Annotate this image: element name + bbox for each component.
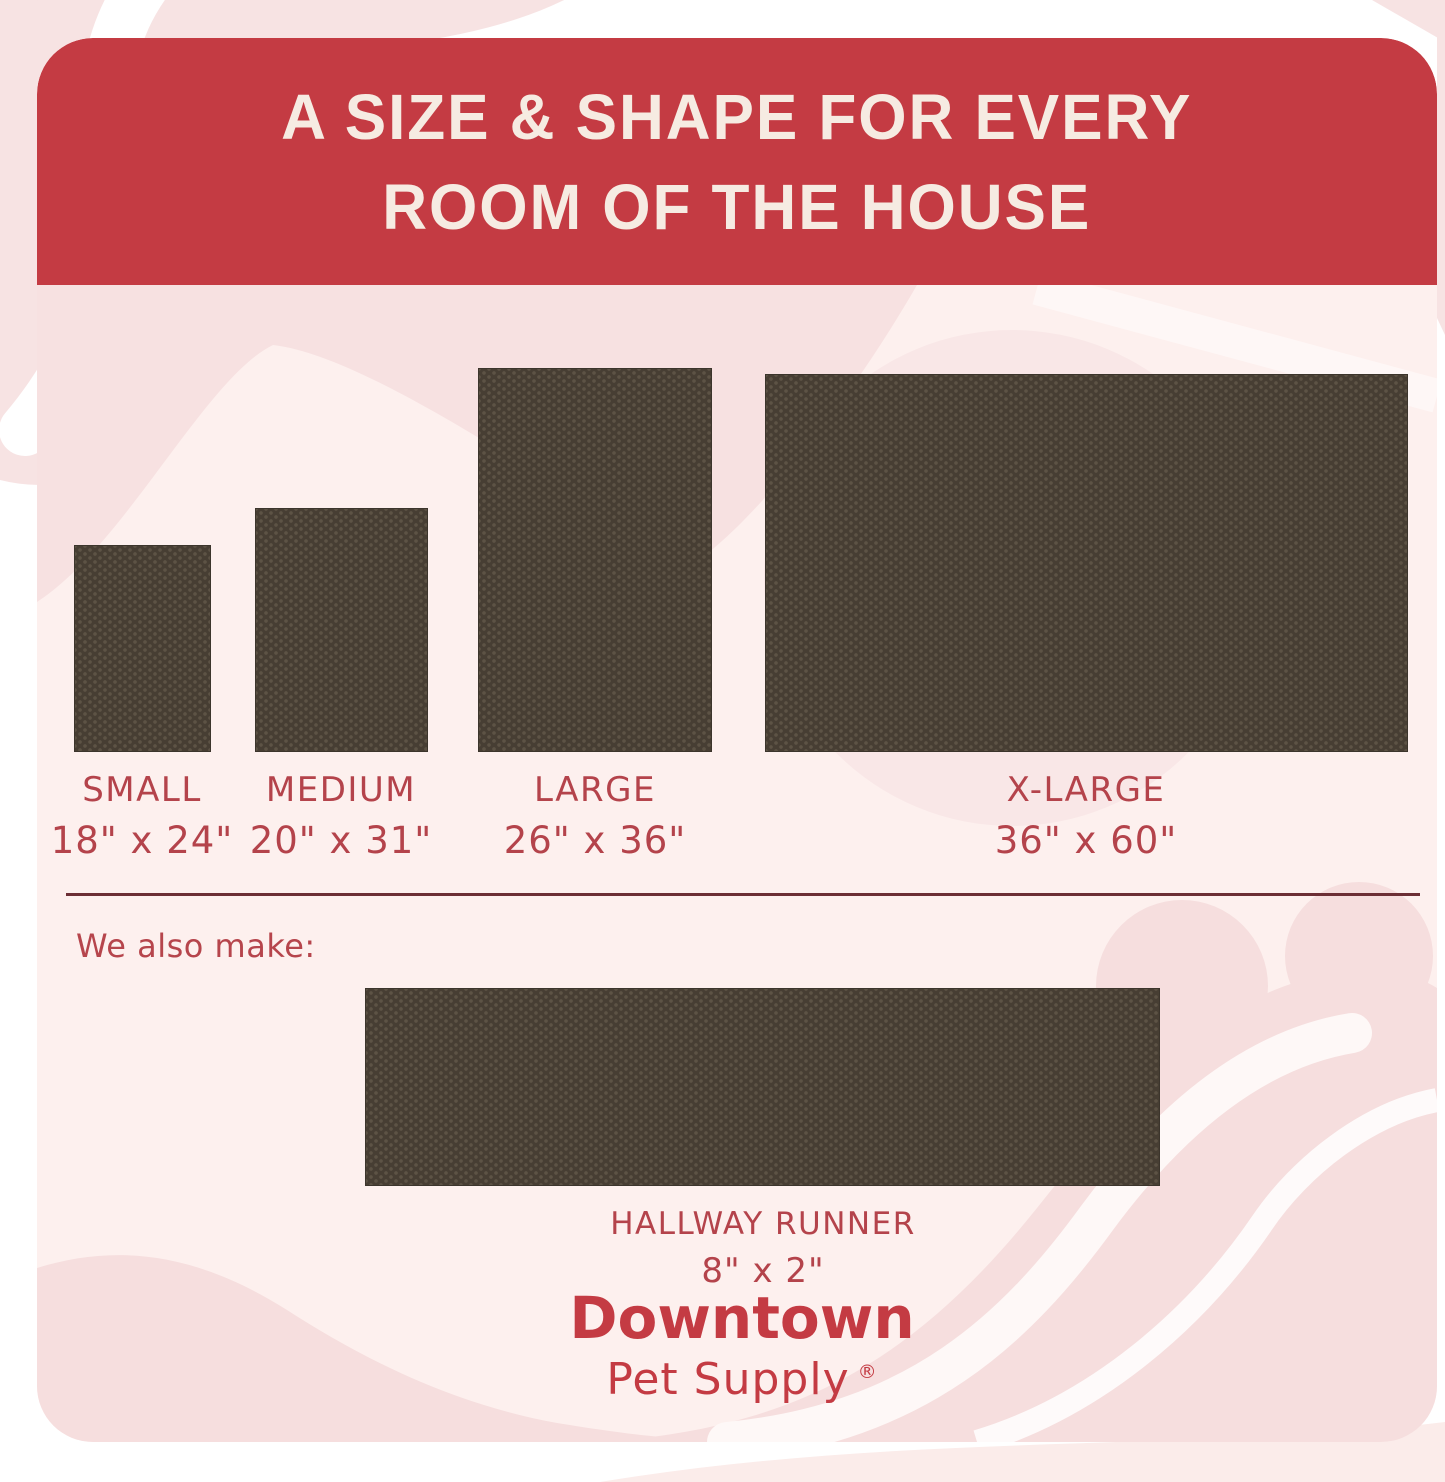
registered-trademark-symbol: ® [858, 1361, 878, 1383]
title-line-2: ROOM OF THE HOUSE [281, 162, 1192, 252]
size-dimensions: 36" x 60" [995, 819, 1178, 862]
size-name: SMALL [51, 770, 234, 810]
size-dimensions: 26" x 36" [504, 819, 687, 862]
size-dimensions: 18" x 24" [51, 819, 234, 862]
size-dimensions: 20" x 31" [250, 819, 433, 862]
mat-swatch-xlarge [765, 374, 1408, 752]
brand-subtitle-text: Pet Supply [606, 1354, 849, 1405]
header-banner: A SIZE & SHAPE FOR EVERY ROOM OF THE HOU… [37, 38, 1437, 285]
size-label-xlarge: X-LARGE 36" x 60" [995, 770, 1178, 862]
infographic-canvas: A SIZE & SHAPE FOR EVERY ROOM OF THE HOU… [0, 0, 1445, 1482]
title-line-1: A SIZE & SHAPE FOR EVERY [281, 72, 1192, 162]
brand-name: Downtown [569, 1284, 914, 1352]
size-name: HALLWAY RUNNER [610, 1206, 916, 1242]
page-title: A SIZE & SHAPE FOR EVERY ROOM OF THE HOU… [281, 72, 1192, 252]
brand-subtitle: Pet Supply® [569, 1354, 914, 1405]
size-label-large: LARGE 26" x 36" [504, 770, 687, 862]
size-label-hallway-runner: HALLWAY RUNNER 8" x 2" [610, 1206, 916, 1291]
mat-swatch-medium [255, 508, 428, 752]
size-label-small: SMALL 18" x 24" [51, 770, 234, 862]
mat-swatch-large [478, 368, 712, 752]
brand-logo: Downtown Pet Supply® [569, 1284, 914, 1405]
mat-swatch-hallway-runner [365, 988, 1160, 1186]
also-make-note: We also make: [76, 927, 316, 965]
size-name: LARGE [504, 770, 687, 810]
size-name: X-LARGE [995, 770, 1178, 810]
size-name: MEDIUM [250, 770, 433, 810]
size-label-medium: MEDIUM 20" x 31" [250, 770, 433, 862]
mat-swatch-small [74, 545, 211, 752]
section-divider [66, 893, 1420, 896]
